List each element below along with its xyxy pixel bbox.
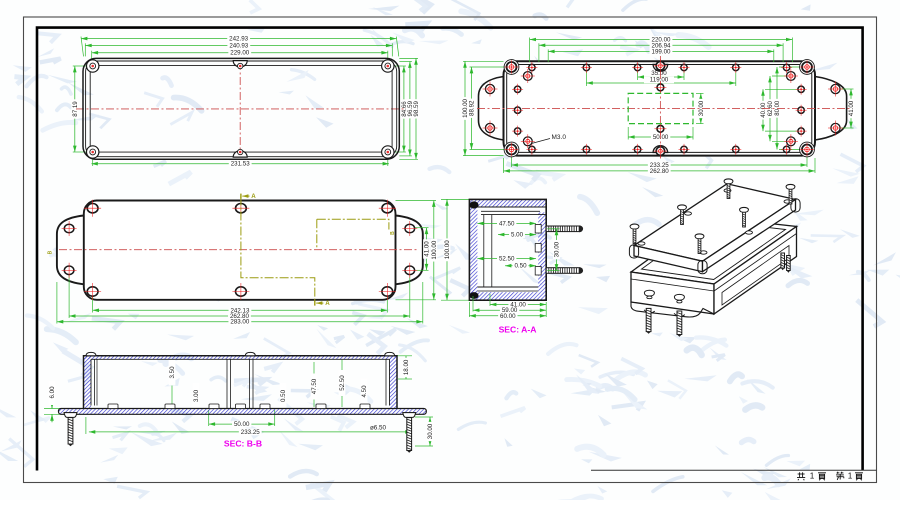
svg-text:283.00: 283.00: [230, 319, 249, 326]
svg-text:88.92: 88.92: [469, 100, 476, 116]
svg-text:18.00: 18.00: [403, 359, 410, 375]
svg-text:30.00: 30.00: [554, 241, 561, 257]
svg-text:30.00: 30.00: [427, 423, 434, 439]
svg-text:40.00: 40.00: [761, 102, 767, 118]
svg-text:50.00: 50.00: [234, 421, 250, 428]
svg-text:A: A: [325, 300, 330, 307]
svg-text:1: 1: [848, 472, 853, 481]
svg-text:52.50: 52.50: [339, 375, 346, 391]
svg-text:M3.0: M3.0: [552, 134, 567, 141]
svg-text:98.59: 98.59: [413, 101, 420, 117]
svg-text:5.00: 5.00: [511, 232, 524, 239]
svg-text:41.00: 41.00: [424, 241, 431, 257]
svg-text:B: B: [390, 231, 396, 235]
svg-text:A: A: [251, 193, 256, 200]
svg-text:80.00: 80.00: [775, 100, 781, 116]
svg-text:47.50: 47.50: [311, 378, 318, 394]
svg-text:52.50: 52.50: [499, 256, 515, 263]
svg-text:ø6.50: ø6.50: [370, 424, 387, 431]
svg-text:3.50: 3.50: [169, 366, 176, 379]
svg-text:4.50: 4.50: [361, 385, 368, 398]
svg-text:0.50: 0.50: [514, 263, 527, 270]
svg-text:3.00: 3.00: [193, 389, 200, 402]
svg-text:47.50: 47.50: [499, 220, 515, 227]
svg-text:0.50: 0.50: [280, 389, 287, 402]
svg-text:B: B: [47, 250, 53, 254]
svg-text:SEC: B-B: SEC: B-B: [224, 439, 262, 449]
svg-text:6.00: 6.00: [49, 386, 56, 399]
svg-text:100.00: 100.00: [431, 240, 438, 259]
svg-text:SEC: A-A: SEC: A-A: [499, 324, 537, 334]
svg-text:119.00: 119.00: [650, 77, 669, 84]
svg-text:231.53: 231.53: [231, 161, 250, 168]
svg-text:100.00: 100.00: [444, 240, 451, 259]
svg-text:60.00: 60.00: [500, 313, 516, 320]
svg-text:240.93: 240.93: [229, 43, 248, 50]
svg-text:229.00: 229.00: [230, 50, 249, 57]
svg-text:199.00: 199.00: [652, 48, 671, 55]
svg-text:262.80: 262.80: [650, 168, 669, 175]
svg-text:50.00: 50.00: [653, 134, 669, 141]
svg-text:233.25: 233.25: [241, 429, 260, 436]
svg-text:1: 1: [810, 472, 815, 481]
